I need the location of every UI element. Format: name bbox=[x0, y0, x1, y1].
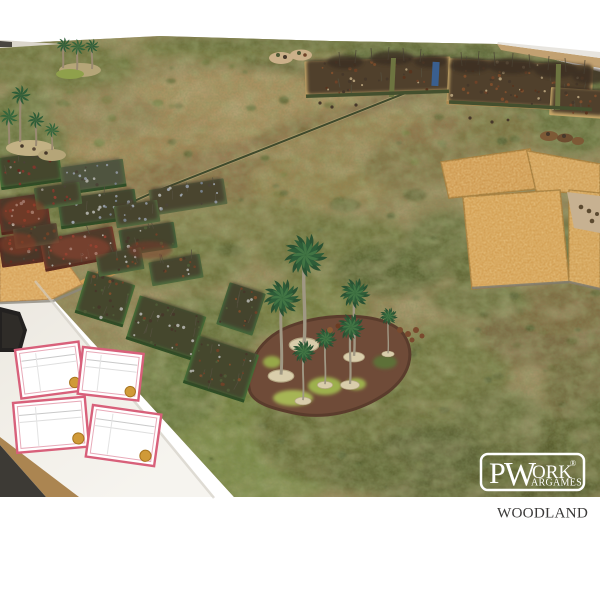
svg-text:WOODLAND: WOODLAND bbox=[497, 505, 588, 522]
svg-text:®: ® bbox=[570, 459, 576, 468]
svg-text:ARGAMES: ARGAMES bbox=[531, 478, 582, 489]
